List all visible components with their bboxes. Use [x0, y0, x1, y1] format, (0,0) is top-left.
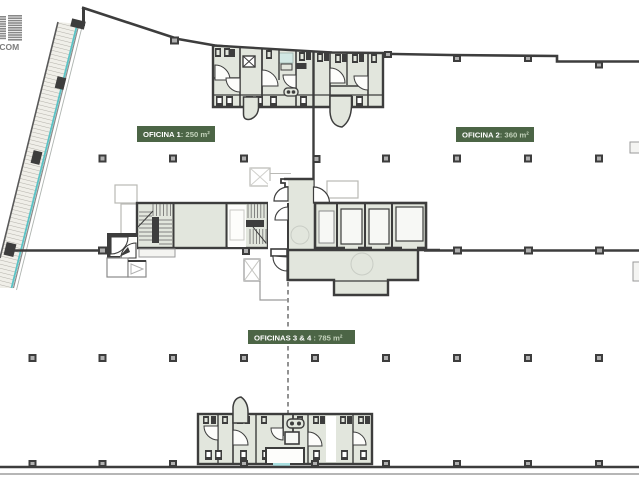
svg-text:OFICINA 2: 360 m²: OFICINA 2: 360 m²: [462, 131, 529, 140]
svg-text:.COM: .COM: [0, 42, 19, 52]
svg-text:OFICINA 1: 250 m²: OFICINA 1: 250 m²: [143, 130, 210, 139]
svg-text:OFICINAS 3 & 4 : 785 m²: OFICINAS 3 & 4 : 785 m²: [254, 334, 343, 343]
